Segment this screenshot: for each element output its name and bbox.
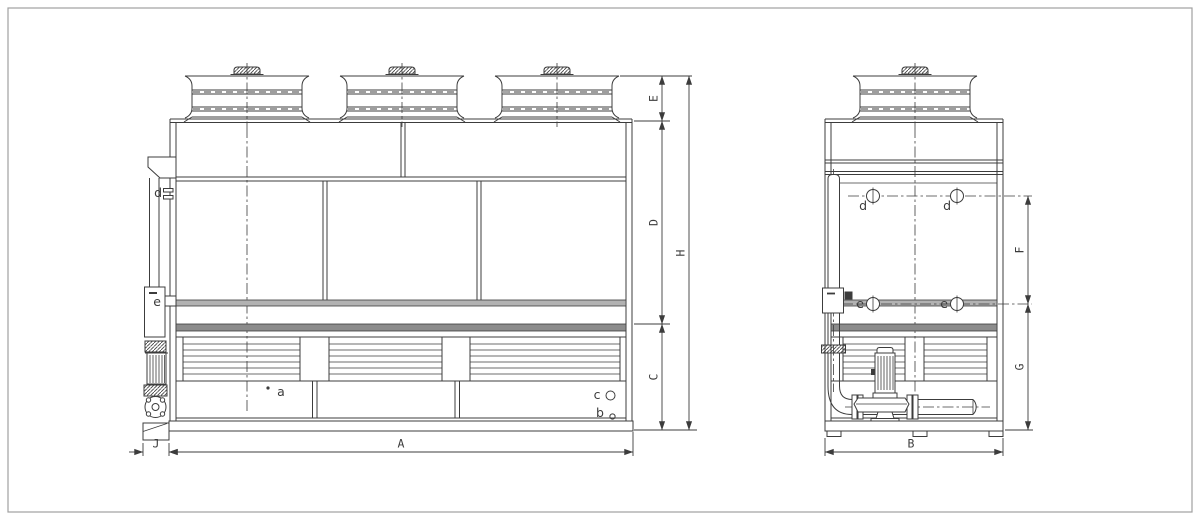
motor-junction-box [871,369,875,375]
louver-panel [470,337,620,381]
louver-panel [924,337,987,381]
part-marker-c [606,391,615,400]
part-label-e-front: e [153,294,161,309]
dim-label-C: C [647,373,661,380]
part-label-a: a [277,384,285,399]
part-label-d-side-right: d [943,198,951,213]
pump-stand [876,412,894,419]
front-base-rail [169,421,633,431]
drawing-canvas: a c b d e E D C H A J [0,0,1200,520]
dim-label-G: G [1013,363,1027,370]
base-foot [989,431,1003,437]
part-label-e-side-left: e [856,296,864,311]
pipe-coupling [822,345,846,353]
side-louver-section [831,337,997,381]
engineering-drawing-page: a c b d e E D C H A J [0,0,1200,520]
side-riser-pipe [828,175,840,289]
pump-coupling-upper [145,341,166,352]
side-valve-box [823,288,844,313]
part-label-c: c [594,387,601,402]
pump-coupling-lower [144,385,167,396]
louver-panel [183,337,300,381]
base-foot [913,431,927,437]
pump-adapter [873,393,897,398]
valve-actuator [845,292,853,300]
side-view: d d e e [822,63,1034,456]
front-basin [143,381,633,440]
fan-unit-2 [339,63,465,127]
elbow-inner [840,386,853,400]
part-marker-a [266,386,269,389]
part-label-e-side-right: e [940,296,948,311]
dim-label-E: E [647,95,661,102]
inlet-bracket [148,157,176,178]
side-pump-volute [854,398,909,412]
front-dimensions: E D C H A J [129,76,697,456]
inlet-flange-d [164,189,174,193]
part-label-b: b [596,405,604,420]
side-pump-motor-cap [877,348,893,354]
front-eliminator-band [176,324,626,331]
fan-unit-1 [184,63,310,127]
front-upper-rail-band [176,300,626,306]
part-label-d-front: d [154,185,162,200]
flange [913,395,918,419]
fan-unit-side [852,63,978,127]
side-eliminator-band [831,324,997,331]
front-view: a c b d e E D C H A J [129,63,697,456]
dim-label-B: B [908,437,915,451]
suction-pipe-end [973,400,976,415]
dim-label-D: D [647,219,661,226]
dim-label-F: F [1013,246,1027,253]
front-casing [170,119,632,421]
page-border [8,8,1192,512]
side-base [825,421,1003,437]
side-casing [825,119,1003,421]
base-foot [827,431,841,437]
part-label-d-side-left: d [859,198,867,213]
front-louver-section [176,337,626,381]
louver-panel [329,337,442,381]
valve-stub [165,296,176,306]
side-base-rail [825,421,1003,431]
fan-unit-3 [494,63,620,127]
side-piping-pump [822,169,991,423]
dim-label-A: A [398,437,405,451]
dim-label-H: H [674,249,688,256]
dim-label-J: J [153,437,160,451]
